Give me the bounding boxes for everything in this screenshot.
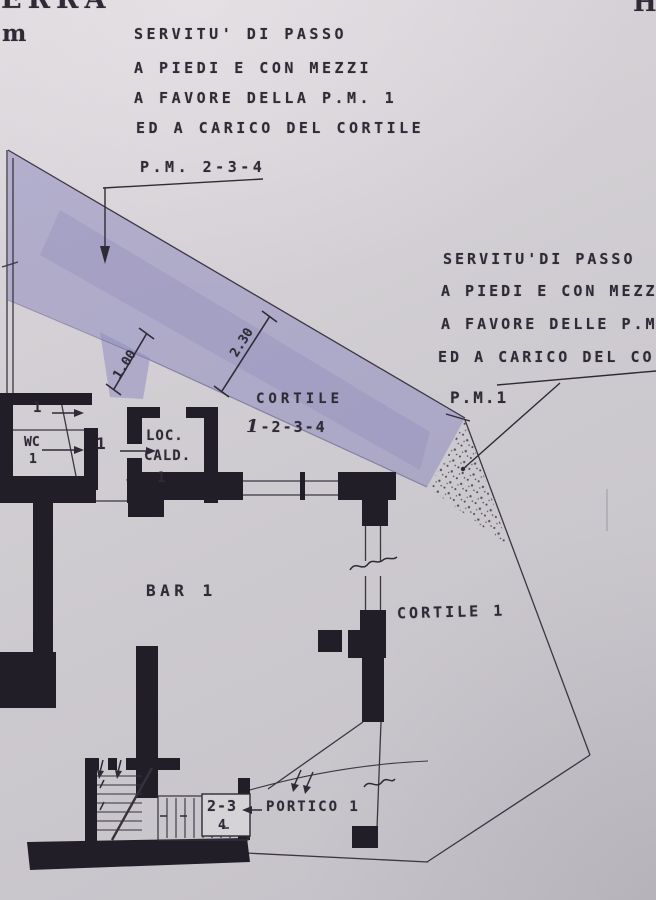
- corner-mark-top-left: ERRA: [1, 0, 111, 13]
- floor-plan-drawing: ERRA m H SERVITU' DI PASSO A PIEDI E CON…: [0, 0, 656, 900]
- label-stair-units: 2-3: [207, 799, 237, 814]
- bar-diagonal-edge: [268, 722, 363, 789]
- servitude-band: [8, 150, 465, 487]
- label-bar: BAR 1: [146, 583, 217, 599]
- note-left-line-5: P.M. 2-3-4: [140, 160, 265, 175]
- bottom-wall-band: [27, 838, 250, 870]
- portico-pillar: [352, 826, 378, 848]
- corner-mark-m: m: [2, 22, 26, 45]
- label-room-top: 1: [33, 401, 41, 415]
- label-stair-unit-4: 4: [218, 819, 226, 832]
- label-cortile-1: CORTILE 1: [397, 604, 506, 622]
- note-left-line-2: A PIEDI E CON MEZZI: [134, 61, 372, 76]
- stair-direction-line: [112, 768, 152, 840]
- portico-left-line: [377, 722, 381, 828]
- note-right-line-1: SERVITU'DI PASSO: [443, 252, 636, 267]
- note-right-line-3: A FAVORE DELLE P.M: [441, 317, 656, 332]
- courtyard-right-boundary: [465, 420, 590, 755]
- note-right-line-2: A PIEDI E CON MEZZ: [441, 284, 656, 299]
- scanned-floor-plan-photo: { "document": { "type": "cadastral floor…: [0, 0, 656, 900]
- label-room-mid: 1: [96, 436, 106, 452]
- note-left-line-3: A FAVORE DELLA P.M. 1: [134, 91, 397, 106]
- label-boiler-1: LOC.: [146, 429, 184, 443]
- label-wc: WC: [24, 436, 40, 449]
- label-portico: PORTICO 1: [266, 800, 360, 814]
- corner-mark-top-right: H: [633, 0, 656, 15]
- bar-counter: [318, 630, 342, 652]
- note-right-line-4: ED A CARICO DEL CO: [438, 350, 655, 365]
- left-note-underline: [103, 179, 263, 188]
- note-left-line-1: SERVITU' DI PASSO: [134, 27, 347, 42]
- unit-rest: -2-3-4: [261, 418, 327, 436]
- note-right-pm1: P.M.1: [450, 390, 508, 406]
- unit-prefix: 1: [246, 416, 261, 437]
- label-wc-unit: 1: [29, 453, 37, 466]
- label-cortile-shared-units: 1-2-3-4: [246, 418, 327, 436]
- note-left-line-4: ED A CARICO DEL CORTILE: [136, 121, 424, 136]
- label-boiler-2: CALD.: [144, 449, 191, 463]
- label-boiler-unit: 1: [157, 471, 165, 485]
- label-cortile-shared: CORTILE: [256, 392, 343, 406]
